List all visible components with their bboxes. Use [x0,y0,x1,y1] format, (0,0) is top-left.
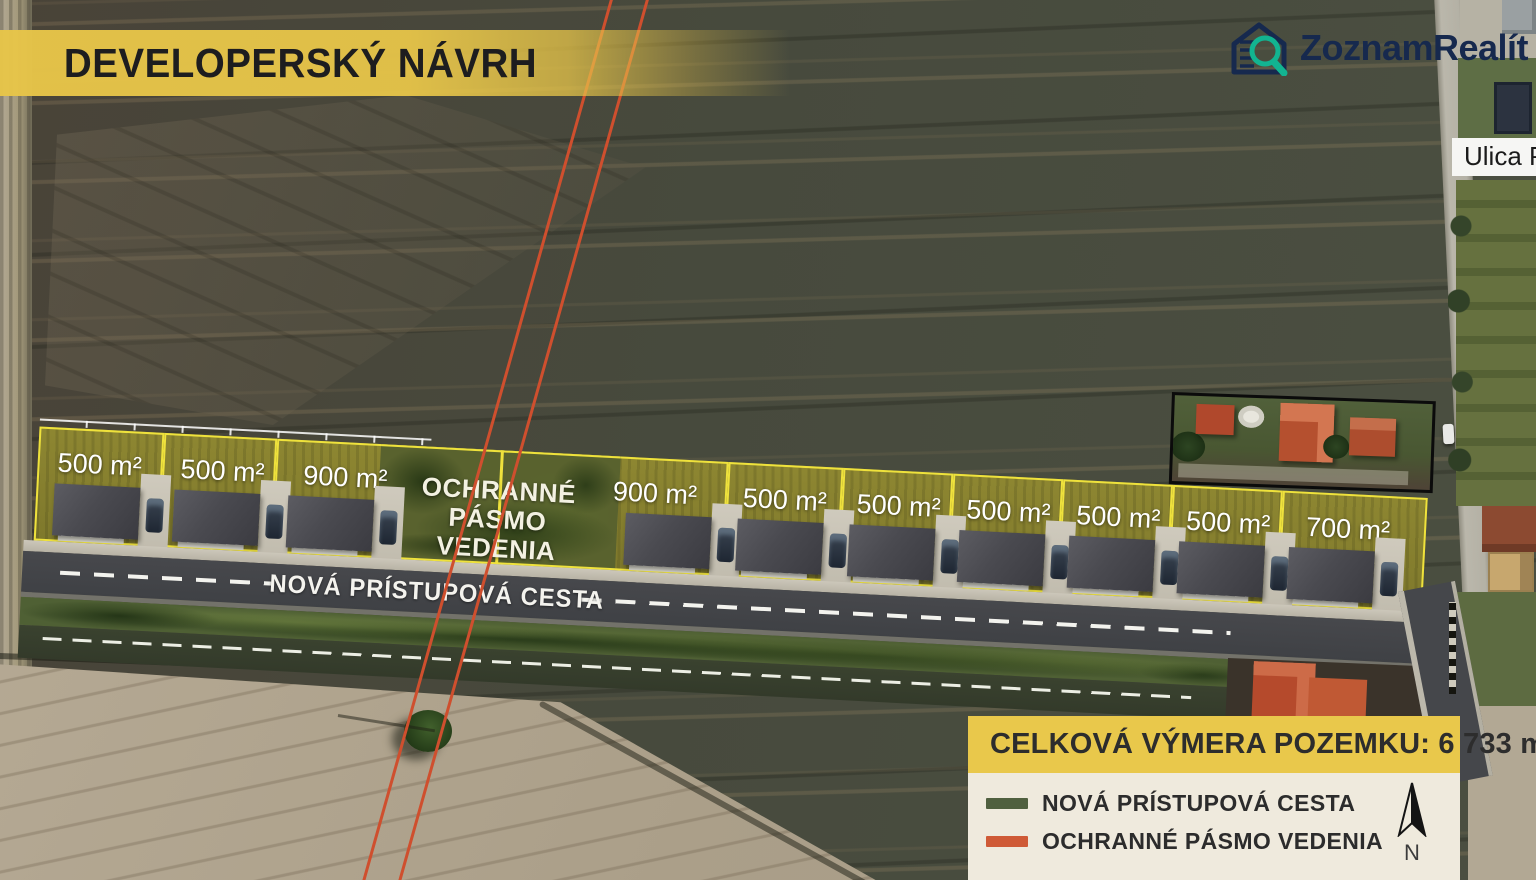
north-label: N [1390,840,1434,866]
proposed-house [735,519,858,585]
proposed-house [1066,536,1189,602]
house-roof [286,495,375,551]
total-area-header: CELKOVÁ VÝMERA POZEMKU: 6 733 m² [968,716,1460,773]
street-name-sign: Ulica Pr [1452,138,1536,176]
plot-area-label: 500 m² [57,448,143,483]
road-swatch [986,798,1028,809]
proposed-house [171,490,294,556]
plot-area-label: 500 m² [180,454,266,489]
legend-body: NOVÁ PRÍSTUPOVÁ CESTA OCHRANNÉ PÁSMO VED… [968,773,1460,880]
proposed-house [623,513,746,579]
page-title: DEVELOPERSKÝ NÁVRH [0,30,743,96]
red-roof-house [1196,404,1235,435]
zone-swatch [986,836,1028,847]
parked-car [1442,424,1454,445]
car [145,498,164,533]
legend-item-road: NOVÁ PRÍSTUPOVÁ CESTA [986,790,1460,817]
proposed-house [1176,541,1299,607]
logo-wordmark: ZoznamRealít [1300,27,1528,69]
plot-area-label: 900 m² [612,476,698,511]
legend-item-zone: OCHRANNÉ PÁSMO VEDENIA [986,828,1460,855]
pool [1238,405,1265,428]
house-roof [1286,547,1375,603]
plot-area-label: 500 m² [856,489,942,524]
zoznamrealit-logo: ZoznamRealít SK [1228,20,1536,76]
house-roof [52,483,141,539]
plot-area-label: 500 m² [966,494,1052,529]
legend-item-label: OCHRANNÉ PÁSMO VEDENIA [1042,828,1383,855]
proposed-house [285,495,408,561]
proposed-house [956,530,1079,596]
dark-shed [1494,82,1532,134]
proposed-house [847,524,970,590]
brown-roof-house [1482,506,1536,552]
red-roof-house [1252,661,1316,720]
car [717,528,736,563]
title-banner: DEVELOPERSKÝ NÁVRH [0,30,790,96]
tree [1171,431,1206,462]
legend-panel: CELKOVÁ VÝMERA POZEMKU: 6 733 m² NOVÁ PR… [968,716,1460,880]
plot-area-label: 500 m² [742,483,828,518]
car [1050,545,1069,580]
red-roof-house [1349,417,1396,457]
roadside-trees [1448,196,1474,496]
car [379,510,398,545]
proposed-house [52,483,175,549]
car [828,533,847,568]
plot-area-label: 500 m² [1076,500,1162,535]
car [940,539,959,574]
tan-house [1488,552,1534,592]
car [1160,550,1179,585]
car [1270,556,1289,591]
logo-house-search-icon [1228,20,1290,76]
house-roof [957,530,1046,586]
junction-curb [1449,602,1456,694]
plot-area-label: 500 m² [1185,506,1271,541]
north-indicator: N [1390,781,1434,866]
north-arrow-icon [1395,781,1429,837]
tree [1323,434,1350,459]
protective-zone-label: OCHRANNÉ PÁSMO VEDENIA [375,470,619,570]
aerial-development-plan: OCHRANNÉ PÁSMO VEDENIA 500 m²500 m²900 m… [0,0,1536,880]
proposed-house [1286,547,1409,613]
house-roof [847,524,936,580]
house-roof [172,490,261,546]
car [1380,562,1399,597]
legend-item-label: NOVÁ PRÍSTUPOVÁ CESTA [1042,790,1355,817]
house-roof [1067,536,1156,592]
house-roof [1177,541,1266,597]
house-roof [623,513,712,569]
car [265,504,284,539]
house-roof [735,519,824,575]
